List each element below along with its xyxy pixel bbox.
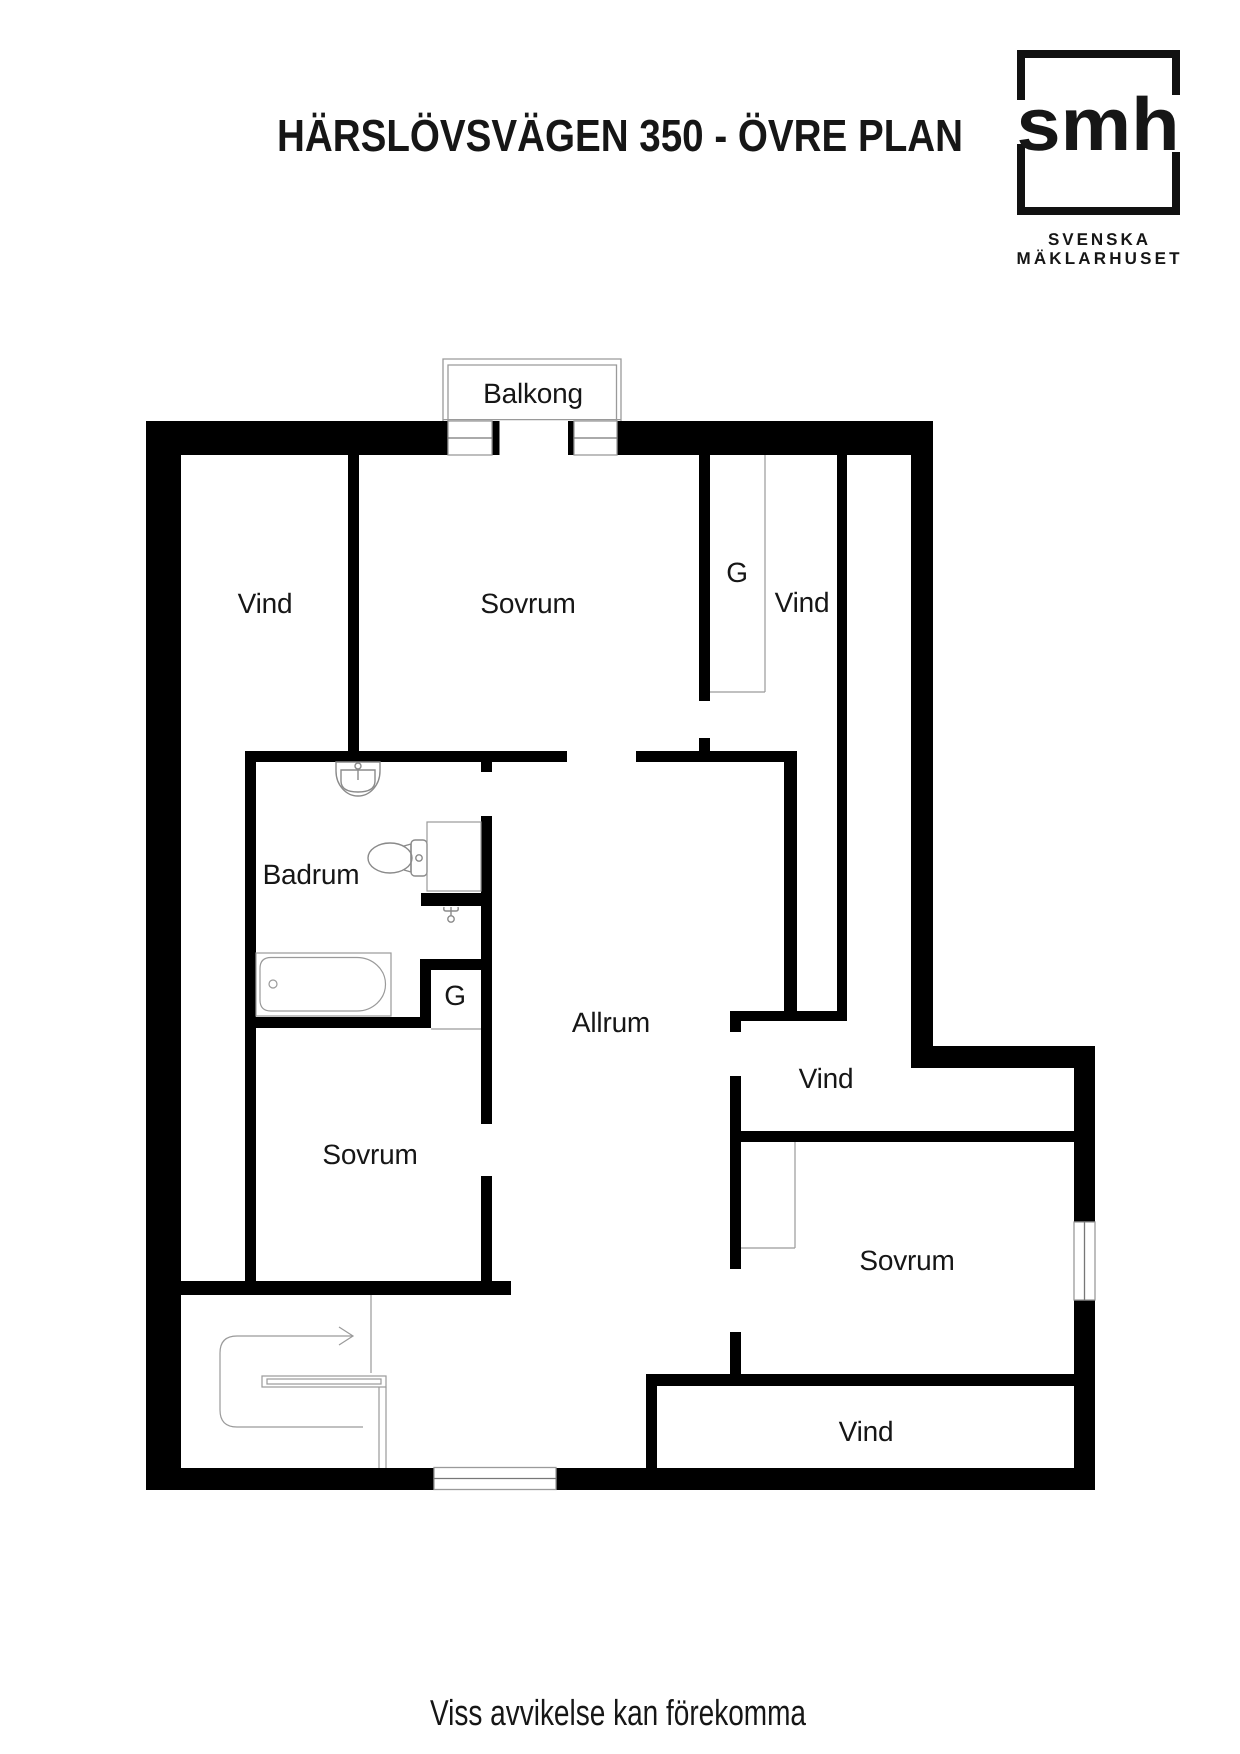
svg-text:Sovrum: Sovrum bbox=[322, 1139, 417, 1170]
svg-text:Viss avvikelse kan förekomma: Viss avvikelse kan förekomma bbox=[430, 1692, 807, 1733]
svg-text:Vind: Vind bbox=[799, 1063, 854, 1094]
svg-text:Badrum: Badrum bbox=[263, 859, 360, 890]
svg-text:smh: smh bbox=[1017, 82, 1180, 166]
svg-text:Balkong: Balkong bbox=[483, 378, 583, 409]
svg-text:Vind: Vind bbox=[839, 1416, 894, 1447]
svg-text:MÄKLARHUSET: MÄKLARHUSET bbox=[1017, 249, 1181, 268]
svg-text:Allrum: Allrum bbox=[572, 1007, 650, 1038]
svg-text:G: G bbox=[444, 980, 466, 1011]
svg-text:Sovrum: Sovrum bbox=[480, 588, 575, 619]
svg-text:G: G bbox=[726, 557, 748, 588]
svg-text:HÄRSLÖVSVÄGEN 350 - ÖVRE PLAN: HÄRSLÖVSVÄGEN 350 - ÖVRE PLAN bbox=[277, 110, 963, 161]
svg-text:Vind: Vind bbox=[775, 587, 830, 618]
svg-text:Vind: Vind bbox=[238, 588, 293, 619]
svg-text:Sovrum: Sovrum bbox=[859, 1245, 954, 1276]
